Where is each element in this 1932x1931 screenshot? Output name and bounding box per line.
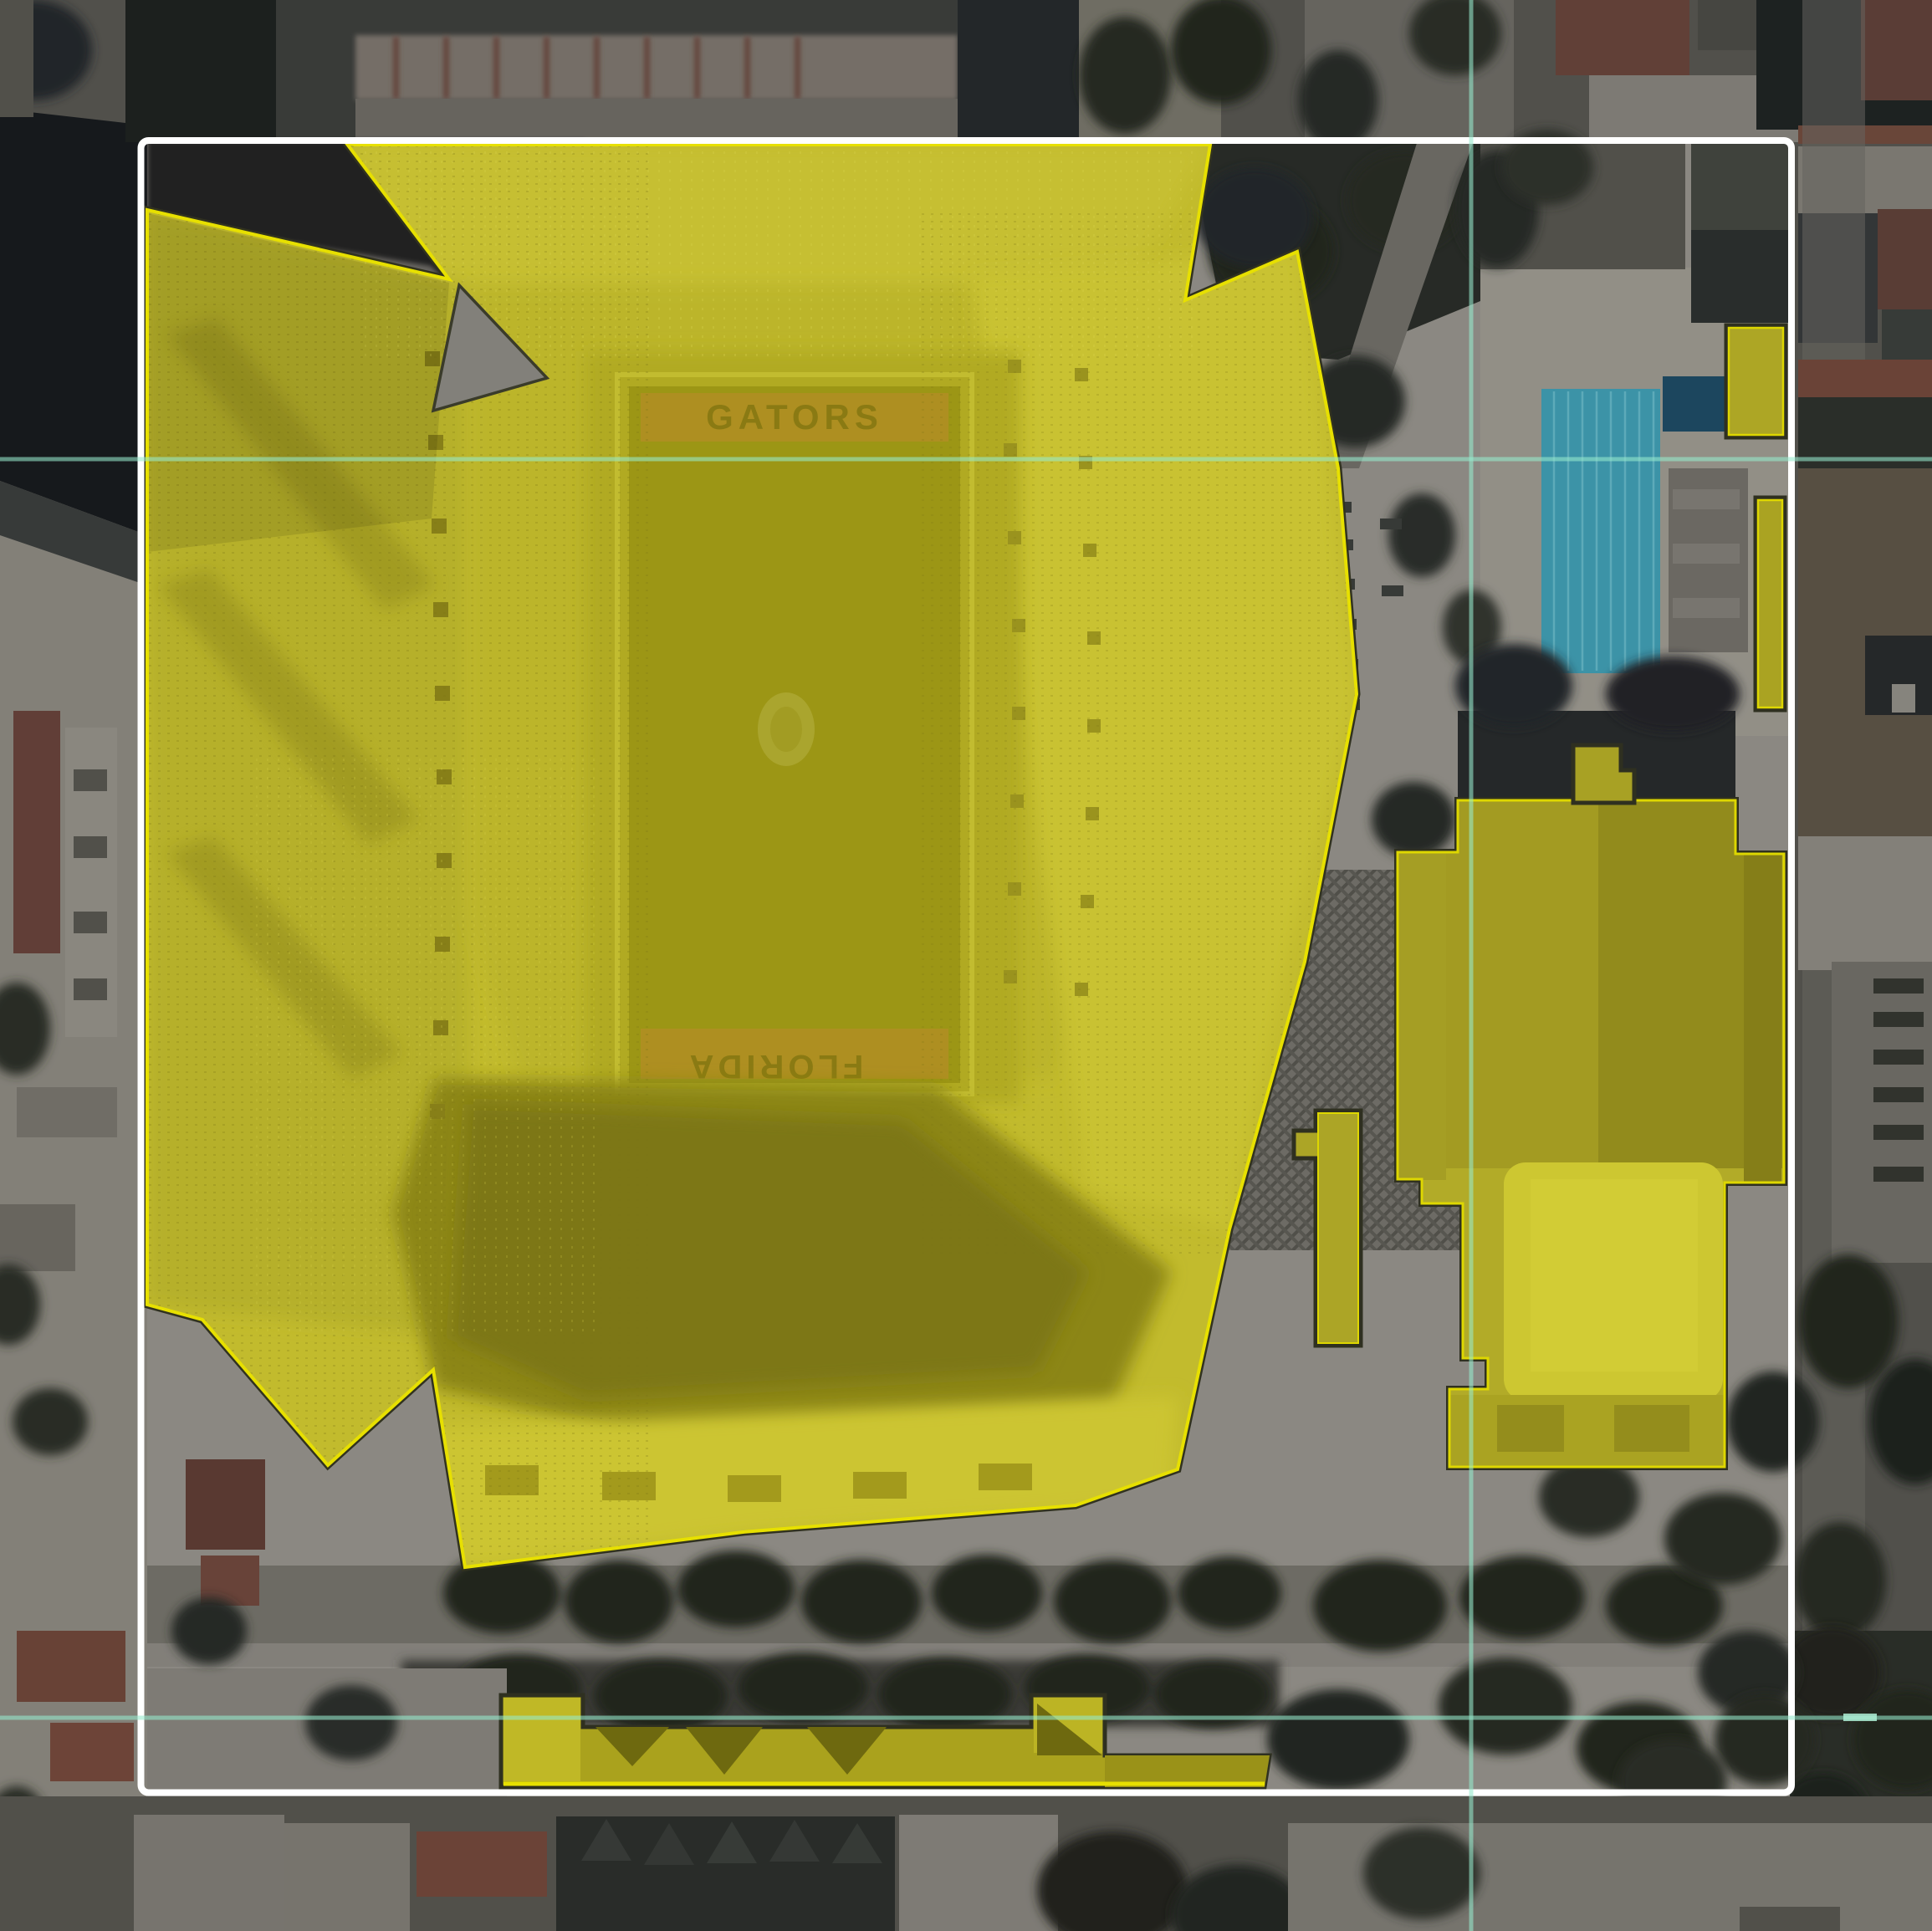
svg-text:FLORIDA: FLORIDA <box>686 1048 864 1085</box>
svg-text:GATORS: GATORS <box>706 397 883 437</box>
